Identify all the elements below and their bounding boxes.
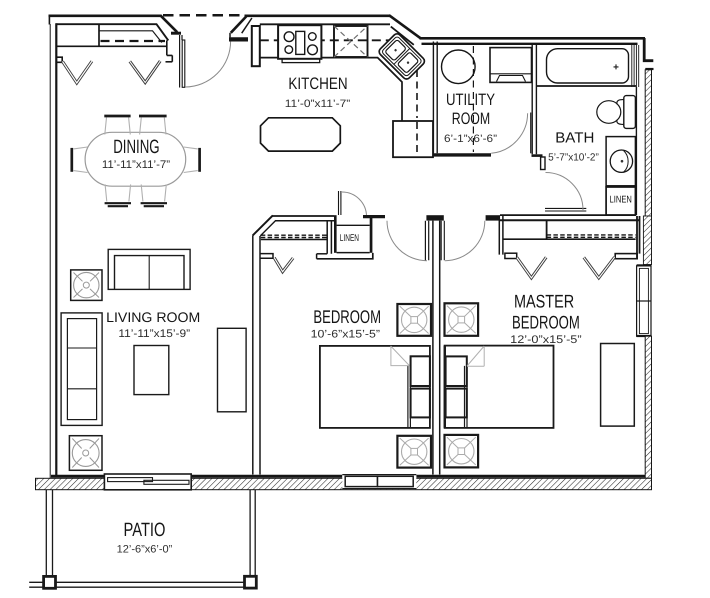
- svg-text:MASTER: MASTER: [514, 290, 574, 311]
- svg-text:10’-6”x15’-5”: 10’-6”x15’-5”: [311, 329, 381, 341]
- svg-text:BEDROOM: BEDROOM: [512, 311, 580, 332]
- svg-text:ROOM: ROOM: [452, 109, 490, 128]
- svg-text:LINEN: LINEN: [610, 194, 632, 205]
- svg-text:DINING: DINING: [113, 137, 159, 158]
- svg-text:PATIO: PATIO: [124, 520, 166, 541]
- svg-text:BEDROOM: BEDROOM: [313, 306, 381, 327]
- svg-text:11’-0”x11’-7”: 11’-0”x11’-7”: [285, 98, 351, 110]
- svg-text:11’-11”x15’-9”: 11’-11”x15’-9”: [118, 328, 190, 340]
- svg-text:12’-0”x15’-5”: 12’-0”x15’-5”: [510, 334, 582, 346]
- svg-text:11’-11”x11’-7”: 11’-11”x11’-7”: [102, 159, 171, 171]
- svg-text:12’-6”x6’-0”: 12’-6”x6’-0”: [117, 543, 173, 555]
- svg-text:LINEN: LINEN: [340, 233, 359, 244]
- svg-text:UTILITY: UTILITY: [446, 90, 495, 109]
- svg-text:KITCHEN: KITCHEN: [288, 74, 347, 93]
- svg-text:BATH: BATH: [555, 130, 594, 146]
- svg-text:5’-7”x10’-2”: 5’-7”x10’-2”: [548, 152, 599, 163]
- svg-text:6’-1”x6’-6”: 6’-1”x6’-6”: [444, 133, 497, 145]
- svg-text:LIVING ROOM: LIVING ROOM: [106, 309, 200, 325]
